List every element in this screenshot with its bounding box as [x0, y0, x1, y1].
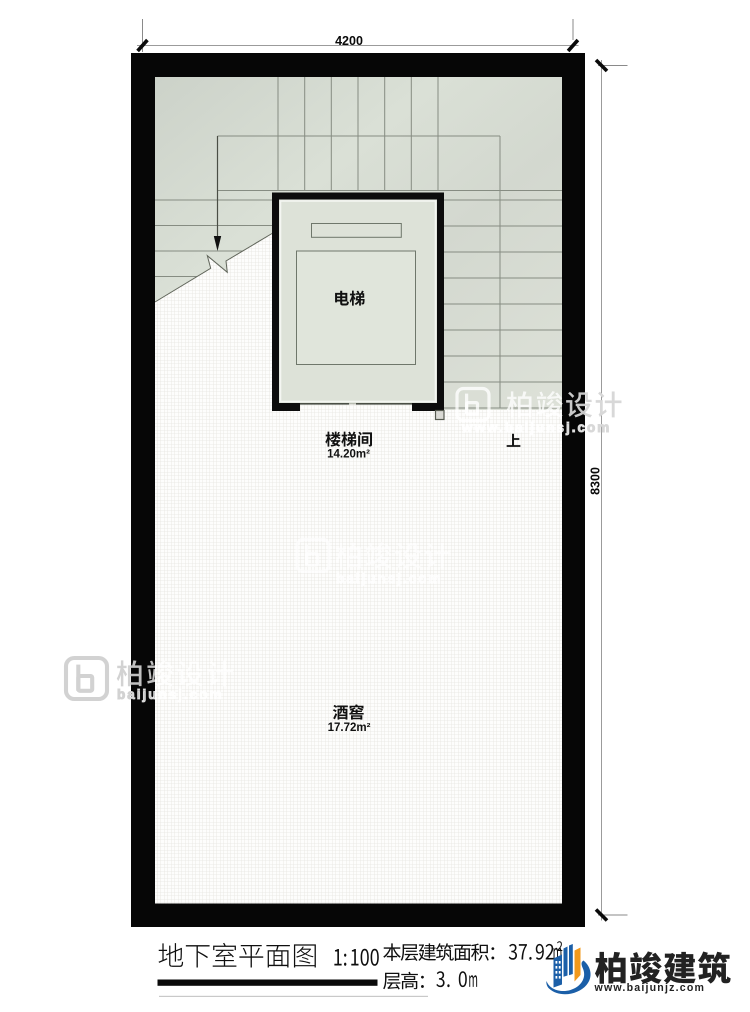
svg-text:baijunsj.com: baijunsj.com [117, 687, 224, 702]
svg-text:8300: 8300 [588, 467, 602, 495]
svg-text:4200: 4200 [335, 34, 363, 48]
svg-text:baijunsj.com: baijunsj.com [336, 571, 443, 586]
svg-text:14.20m²: 14.20m² [327, 449, 370, 461]
svg-text:www.baijunjz.com: www.baijunjz.com [594, 982, 706, 994]
svg-text:17.72m²: 17.72m² [328, 722, 371, 734]
